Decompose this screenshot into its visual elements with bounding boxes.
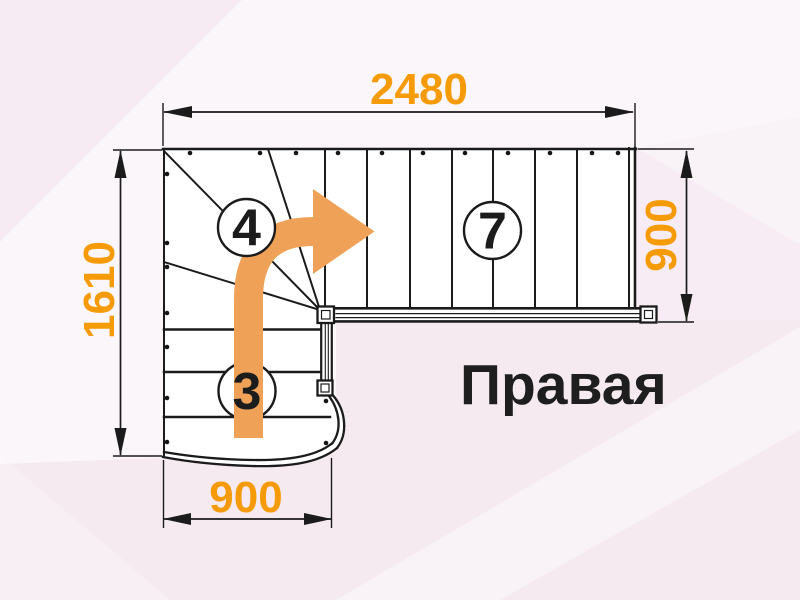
dot: [421, 151, 426, 156]
dot: [165, 345, 170, 350]
dimension-bottom-value: 900: [209, 473, 282, 522]
step-count-winder: 4: [232, 200, 261, 258]
step-count-lower-flight: 3: [233, 363, 262, 421]
dot: [548, 151, 553, 156]
newel-post-right-inner: [645, 311, 653, 319]
dot: [506, 151, 511, 156]
dot: [380, 151, 385, 156]
newel-post-corner-inner: [322, 311, 331, 320]
page-title: Правая: [460, 353, 667, 417]
dot: [590, 151, 595, 156]
newel-post-middle-inner: [321, 384, 329, 392]
dot: [324, 399, 329, 404]
dot: [324, 441, 329, 446]
dot: [165, 396, 170, 401]
dimension-top-value: 2480: [370, 65, 468, 114]
dimension-right-value: 900: [637, 198, 686, 271]
dot: [165, 172, 170, 177]
dot: [165, 440, 170, 445]
staircase-plan-drawing: 3 4 7 2480 1610 900: [0, 0, 800, 600]
step-count-upper-flight: 7: [478, 203, 507, 261]
dot: [165, 265, 170, 270]
dimension-left-value: 1610: [75, 241, 124, 339]
dot: [258, 151, 263, 156]
dot: [165, 241, 170, 246]
dot: [336, 151, 341, 156]
staircase-plan-page: 3 4 7 2480 1610 900: [0, 0, 800, 600]
dot: [294, 151, 299, 156]
dot: [616, 151, 621, 156]
dot: [463, 151, 468, 156]
dot: [165, 311, 170, 316]
dot: [188, 151, 193, 156]
